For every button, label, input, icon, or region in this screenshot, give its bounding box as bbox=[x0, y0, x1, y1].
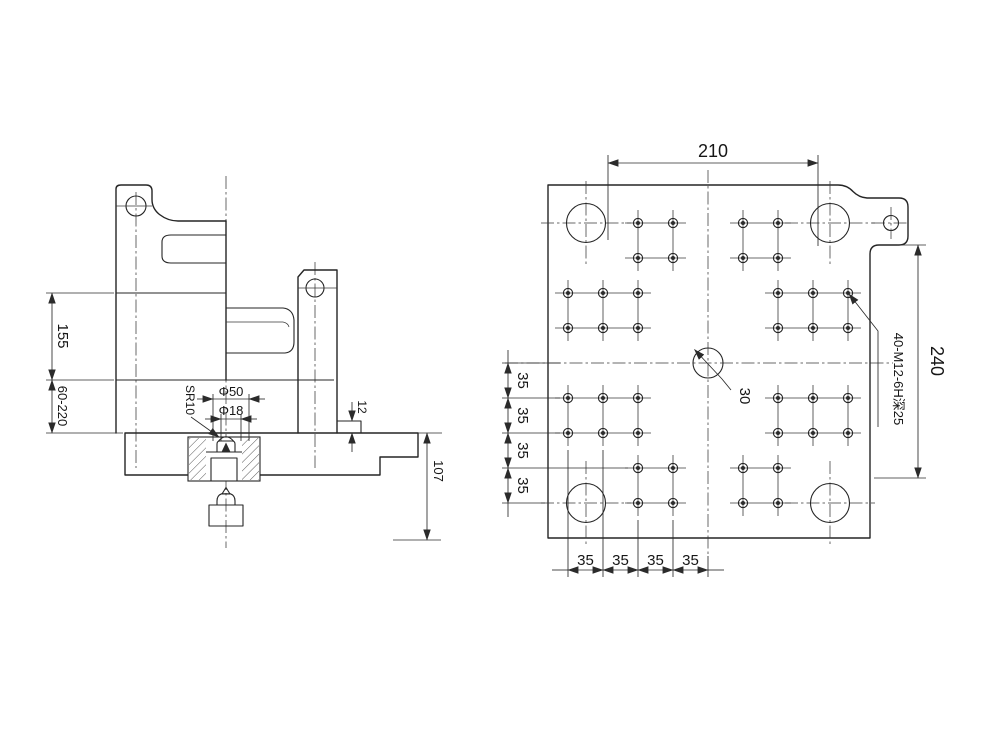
base-plate-outline bbox=[125, 433, 418, 475]
dim-107-label: 107 bbox=[431, 460, 446, 482]
dim-sr10-label: SR10 bbox=[183, 385, 197, 415]
top-bracket-slot bbox=[162, 235, 226, 263]
mounting-hole-center bbox=[741, 501, 745, 505]
dim-left-chain: 35 35 35 35 bbox=[502, 350, 628, 517]
dim-107: 107 bbox=[393, 433, 446, 540]
mounting-hole-center bbox=[811, 396, 815, 400]
top-bracket-outline bbox=[116, 185, 226, 433]
dim-60-220: 60-220 bbox=[46, 380, 123, 433]
mounting-hole-center bbox=[601, 326, 605, 330]
dim-35-bottom-4: 35 bbox=[682, 552, 699, 569]
tongue-inner-line bbox=[226, 322, 289, 327]
right-bracket-outline bbox=[298, 270, 337, 433]
mounting-hole-center bbox=[811, 326, 815, 330]
mounting-hole-center bbox=[566, 326, 570, 330]
mounting-hole-center bbox=[636, 326, 640, 330]
front-view: 210 240 35 35 35 35 bbox=[502, 141, 947, 577]
dim-155: 155 bbox=[46, 293, 114, 380]
hole-note: 40-M12-6H深25 bbox=[849, 294, 906, 427]
dim-35-bottom-2: 35 bbox=[612, 552, 629, 569]
mounting-hole-center bbox=[776, 221, 780, 225]
mounting-hole-center bbox=[811, 431, 815, 435]
dim-60-220-label: 60-220 bbox=[55, 386, 70, 426]
mounting-hole-center bbox=[636, 396, 640, 400]
hatch-left bbox=[189, 438, 206, 480]
mounting-hole-center bbox=[566, 396, 570, 400]
dim-240: 240 bbox=[874, 245, 947, 478]
dim-240-label: 240 bbox=[927, 346, 947, 376]
dim-35-left-1: 35 bbox=[514, 372, 531, 389]
mounting-hole-center bbox=[741, 466, 745, 470]
mounting-hole-center bbox=[776, 291, 780, 295]
dim-35-bottom-1: 35 bbox=[577, 552, 594, 569]
dim-210-label: 210 bbox=[698, 141, 728, 161]
mounting-hole-center bbox=[566, 291, 570, 295]
mounting-hole-center bbox=[846, 396, 850, 400]
mounting-hole-center bbox=[601, 291, 605, 295]
hatch-right bbox=[242, 438, 259, 480]
mounting-hole-center bbox=[636, 221, 640, 225]
mounting-hole-center bbox=[776, 501, 780, 505]
platen-engineering-drawing: 155 60-220 Φ50 Φ18 SR10 bbox=[0, 0, 1000, 750]
mounting-hole-center bbox=[671, 501, 675, 505]
mounting-hole-center bbox=[776, 326, 780, 330]
mounting-hole-center bbox=[636, 291, 640, 295]
drawing-page: 155 60-220 Φ50 Φ18 SR10 bbox=[0, 0, 1000, 750]
dim-155-label: 155 bbox=[54, 323, 71, 348]
side-view: 155 60-220 Φ50 Φ18 SR10 bbox=[46, 176, 446, 548]
dim-210: 210 bbox=[608, 141, 818, 246]
mounting-hole-center bbox=[741, 256, 745, 260]
dim-sr10: SR10 bbox=[183, 385, 219, 437]
dim-35-left-4: 35 bbox=[514, 477, 531, 494]
mounting-hole-center bbox=[636, 431, 640, 435]
mounting-hole-center bbox=[566, 431, 570, 435]
mounting-hole-center bbox=[776, 256, 780, 260]
dim-30-label: 30 bbox=[736, 388, 753, 405]
mounting-hole-center bbox=[636, 256, 640, 260]
dim-d50-label: Φ50 bbox=[219, 384, 244, 399]
mounting-hole-center bbox=[846, 431, 850, 435]
mounting-hole-center bbox=[811, 291, 815, 295]
mounting-hole-center bbox=[636, 501, 640, 505]
hole-note-label: 40-M12-6H深25 bbox=[891, 333, 906, 426]
mounting-hole-center bbox=[846, 326, 850, 330]
tongue-outline bbox=[226, 308, 294, 353]
platen-outline bbox=[548, 185, 908, 538]
dim-35-bottom-3: 35 bbox=[647, 552, 664, 569]
mounting-hole-center bbox=[601, 431, 605, 435]
dim-35-left-2: 35 bbox=[514, 407, 531, 424]
mounting-hole-center bbox=[671, 221, 675, 225]
mounting-hole-center bbox=[671, 466, 675, 470]
mounting-hole-center bbox=[741, 221, 745, 225]
mounting-hole-center bbox=[671, 256, 675, 260]
mounting-hole-center bbox=[776, 431, 780, 435]
dim-d18-label: Φ18 bbox=[219, 403, 244, 418]
mounting-hole-center bbox=[776, 466, 780, 470]
dim-35-left-3: 35 bbox=[514, 442, 531, 459]
flange-step bbox=[337, 421, 361, 433]
mounting-hole-center bbox=[601, 396, 605, 400]
dim-12-label: 12 bbox=[355, 400, 369, 414]
mounting-hole-center bbox=[776, 396, 780, 400]
mounting-hole-center bbox=[636, 466, 640, 470]
